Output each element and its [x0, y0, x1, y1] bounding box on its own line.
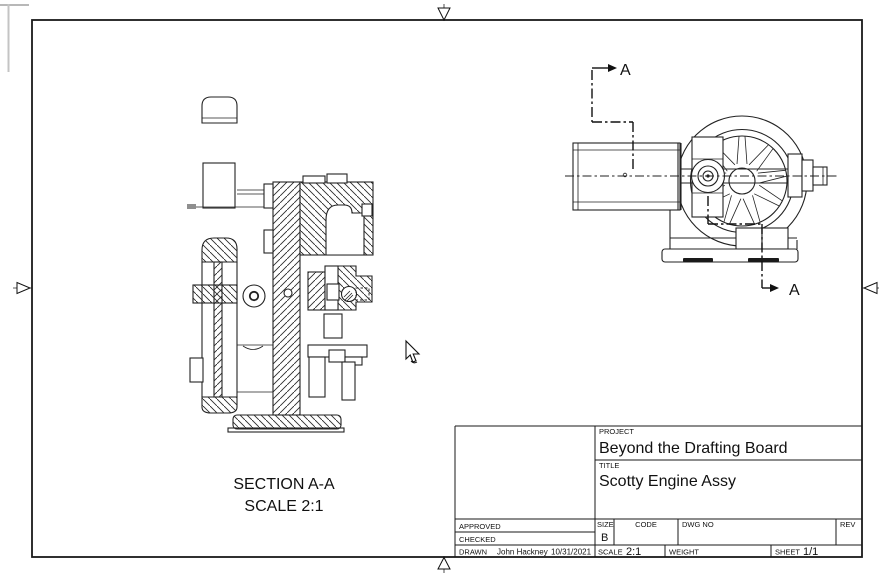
rev-label: REV: [840, 520, 855, 529]
sheet-label: SHEET: [775, 548, 800, 557]
drawing-sheet: SECTION A-A SCALE 2:1: [0, 0, 893, 576]
centering-mark-left: [13, 283, 32, 294]
scale-label: SCALE: [598, 548, 623, 557]
project-value: Beyond the Drafting Board: [599, 440, 788, 457]
cut-arrowhead-top: [608, 64, 617, 72]
title-value: Scotty Engine Assy: [599, 473, 736, 490]
size-value: B: [601, 532, 608, 544]
checked-label: CHECKED: [459, 535, 496, 544]
cap-knob: [202, 97, 237, 123]
pivot-boss: [243, 285, 265, 307]
weight-label: WEIGHT: [669, 548, 699, 557]
cylinder-head-block: [300, 174, 373, 255]
section-label-line1: SECTION A-A: [233, 476, 335, 493]
lower-bracket: [308, 345, 367, 400]
approved-label: APPROVED: [459, 522, 501, 531]
dwg-no-label: DWG NO: [682, 520, 714, 529]
side-view[interactable]: A A: [565, 62, 838, 299]
cylinder-side: [573, 143, 681, 210]
cursor-arrow: [406, 341, 419, 363]
cut-label-bottom: A: [789, 282, 800, 299]
code-label: CODE: [635, 520, 657, 529]
cylinder-assembly: [190, 238, 273, 413]
scale-value: 2:1: [626, 546, 641, 558]
project-label: PROJECT: [599, 427, 634, 436]
cut-arrowhead-bottom: [770, 284, 779, 292]
cut-label-top: A: [620, 62, 631, 79]
centering-mark-right: [862, 283, 879, 294]
section-label-line2: SCALE 2:1: [244, 498, 323, 515]
centering-mark-bottom: [438, 556, 450, 573]
sheet-border: [32, 20, 862, 557]
fuel-tank: [187, 163, 273, 209]
sheet-value: 1/1: [803, 546, 818, 558]
size-label: SIZE: [597, 520, 614, 529]
crank-bearing-cluster: [308, 266, 372, 338]
title-block: PROJECT Beyond the Drafting Board TITLE …: [455, 426, 862, 558]
title-label: TITLE: [599, 461, 619, 470]
drawn-date-value: 10/31/2021: [551, 548, 592, 557]
paper-edge: [0, 4, 29, 72]
section-view-label[interactable]: SECTION A-A SCALE 2:1: [233, 476, 335, 515]
base-plate: [228, 415, 344, 432]
centering-mark-top: [438, 4, 450, 21]
drawn-label: DRAWN: [459, 548, 487, 557]
drawn-by-value: John Hackney: [497, 548, 548, 557]
section-view-a-a[interactable]: SECTION A-A SCALE 2:1: [187, 97, 373, 515]
main-frame-column: [264, 182, 300, 415]
